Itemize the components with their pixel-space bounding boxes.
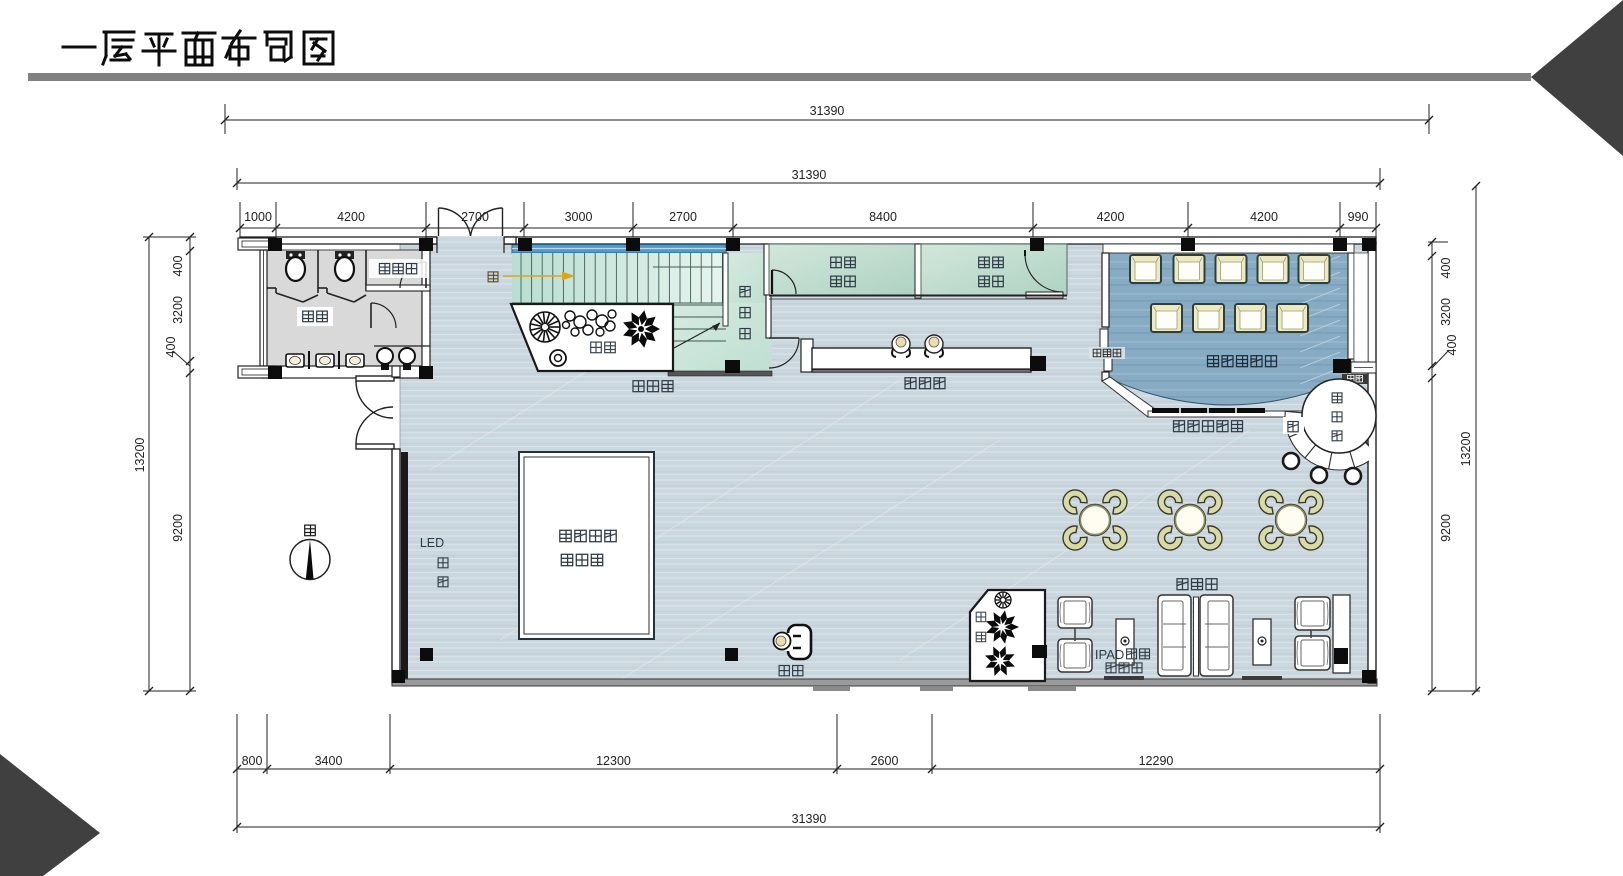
svg-text:3200: 3200 bbox=[1439, 298, 1453, 326]
svg-text:3000: 3000 bbox=[565, 210, 593, 224]
svg-text:4200: 4200 bbox=[337, 210, 365, 224]
svg-text:9200: 9200 bbox=[1439, 514, 1453, 542]
svg-text:3200: 3200 bbox=[171, 296, 185, 324]
svg-text:2700: 2700 bbox=[669, 210, 697, 224]
svg-text:4200: 4200 bbox=[1250, 210, 1278, 224]
svg-text:3400: 3400 bbox=[315, 754, 343, 768]
svg-text:2600: 2600 bbox=[871, 754, 899, 768]
svg-text:13200: 13200 bbox=[1459, 432, 1473, 467]
svg-text:400: 400 bbox=[1445, 335, 1459, 356]
svg-text:31390: 31390 bbox=[792, 168, 827, 182]
svg-text:IPAD: IPAD bbox=[1095, 647, 1124, 662]
svg-text:4200: 4200 bbox=[1097, 210, 1125, 224]
svg-text:990: 990 bbox=[1348, 210, 1369, 224]
svg-text:LED: LED bbox=[420, 536, 444, 550]
svg-text:400: 400 bbox=[171, 256, 185, 277]
svg-text:400: 400 bbox=[1439, 258, 1453, 279]
svg-text:400: 400 bbox=[164, 337, 178, 358]
svg-text:12300: 12300 bbox=[596, 754, 631, 768]
svg-text:31390: 31390 bbox=[792, 812, 827, 826]
svg-text:9200: 9200 bbox=[171, 514, 185, 542]
svg-text:1000: 1000 bbox=[244, 210, 272, 224]
svg-text:31390: 31390 bbox=[810, 104, 845, 118]
svg-text:800: 800 bbox=[242, 754, 263, 768]
svg-text:8400: 8400 bbox=[869, 210, 897, 224]
svg-text:12290: 12290 bbox=[1139, 754, 1174, 768]
svg-text:13200: 13200 bbox=[133, 438, 147, 473]
